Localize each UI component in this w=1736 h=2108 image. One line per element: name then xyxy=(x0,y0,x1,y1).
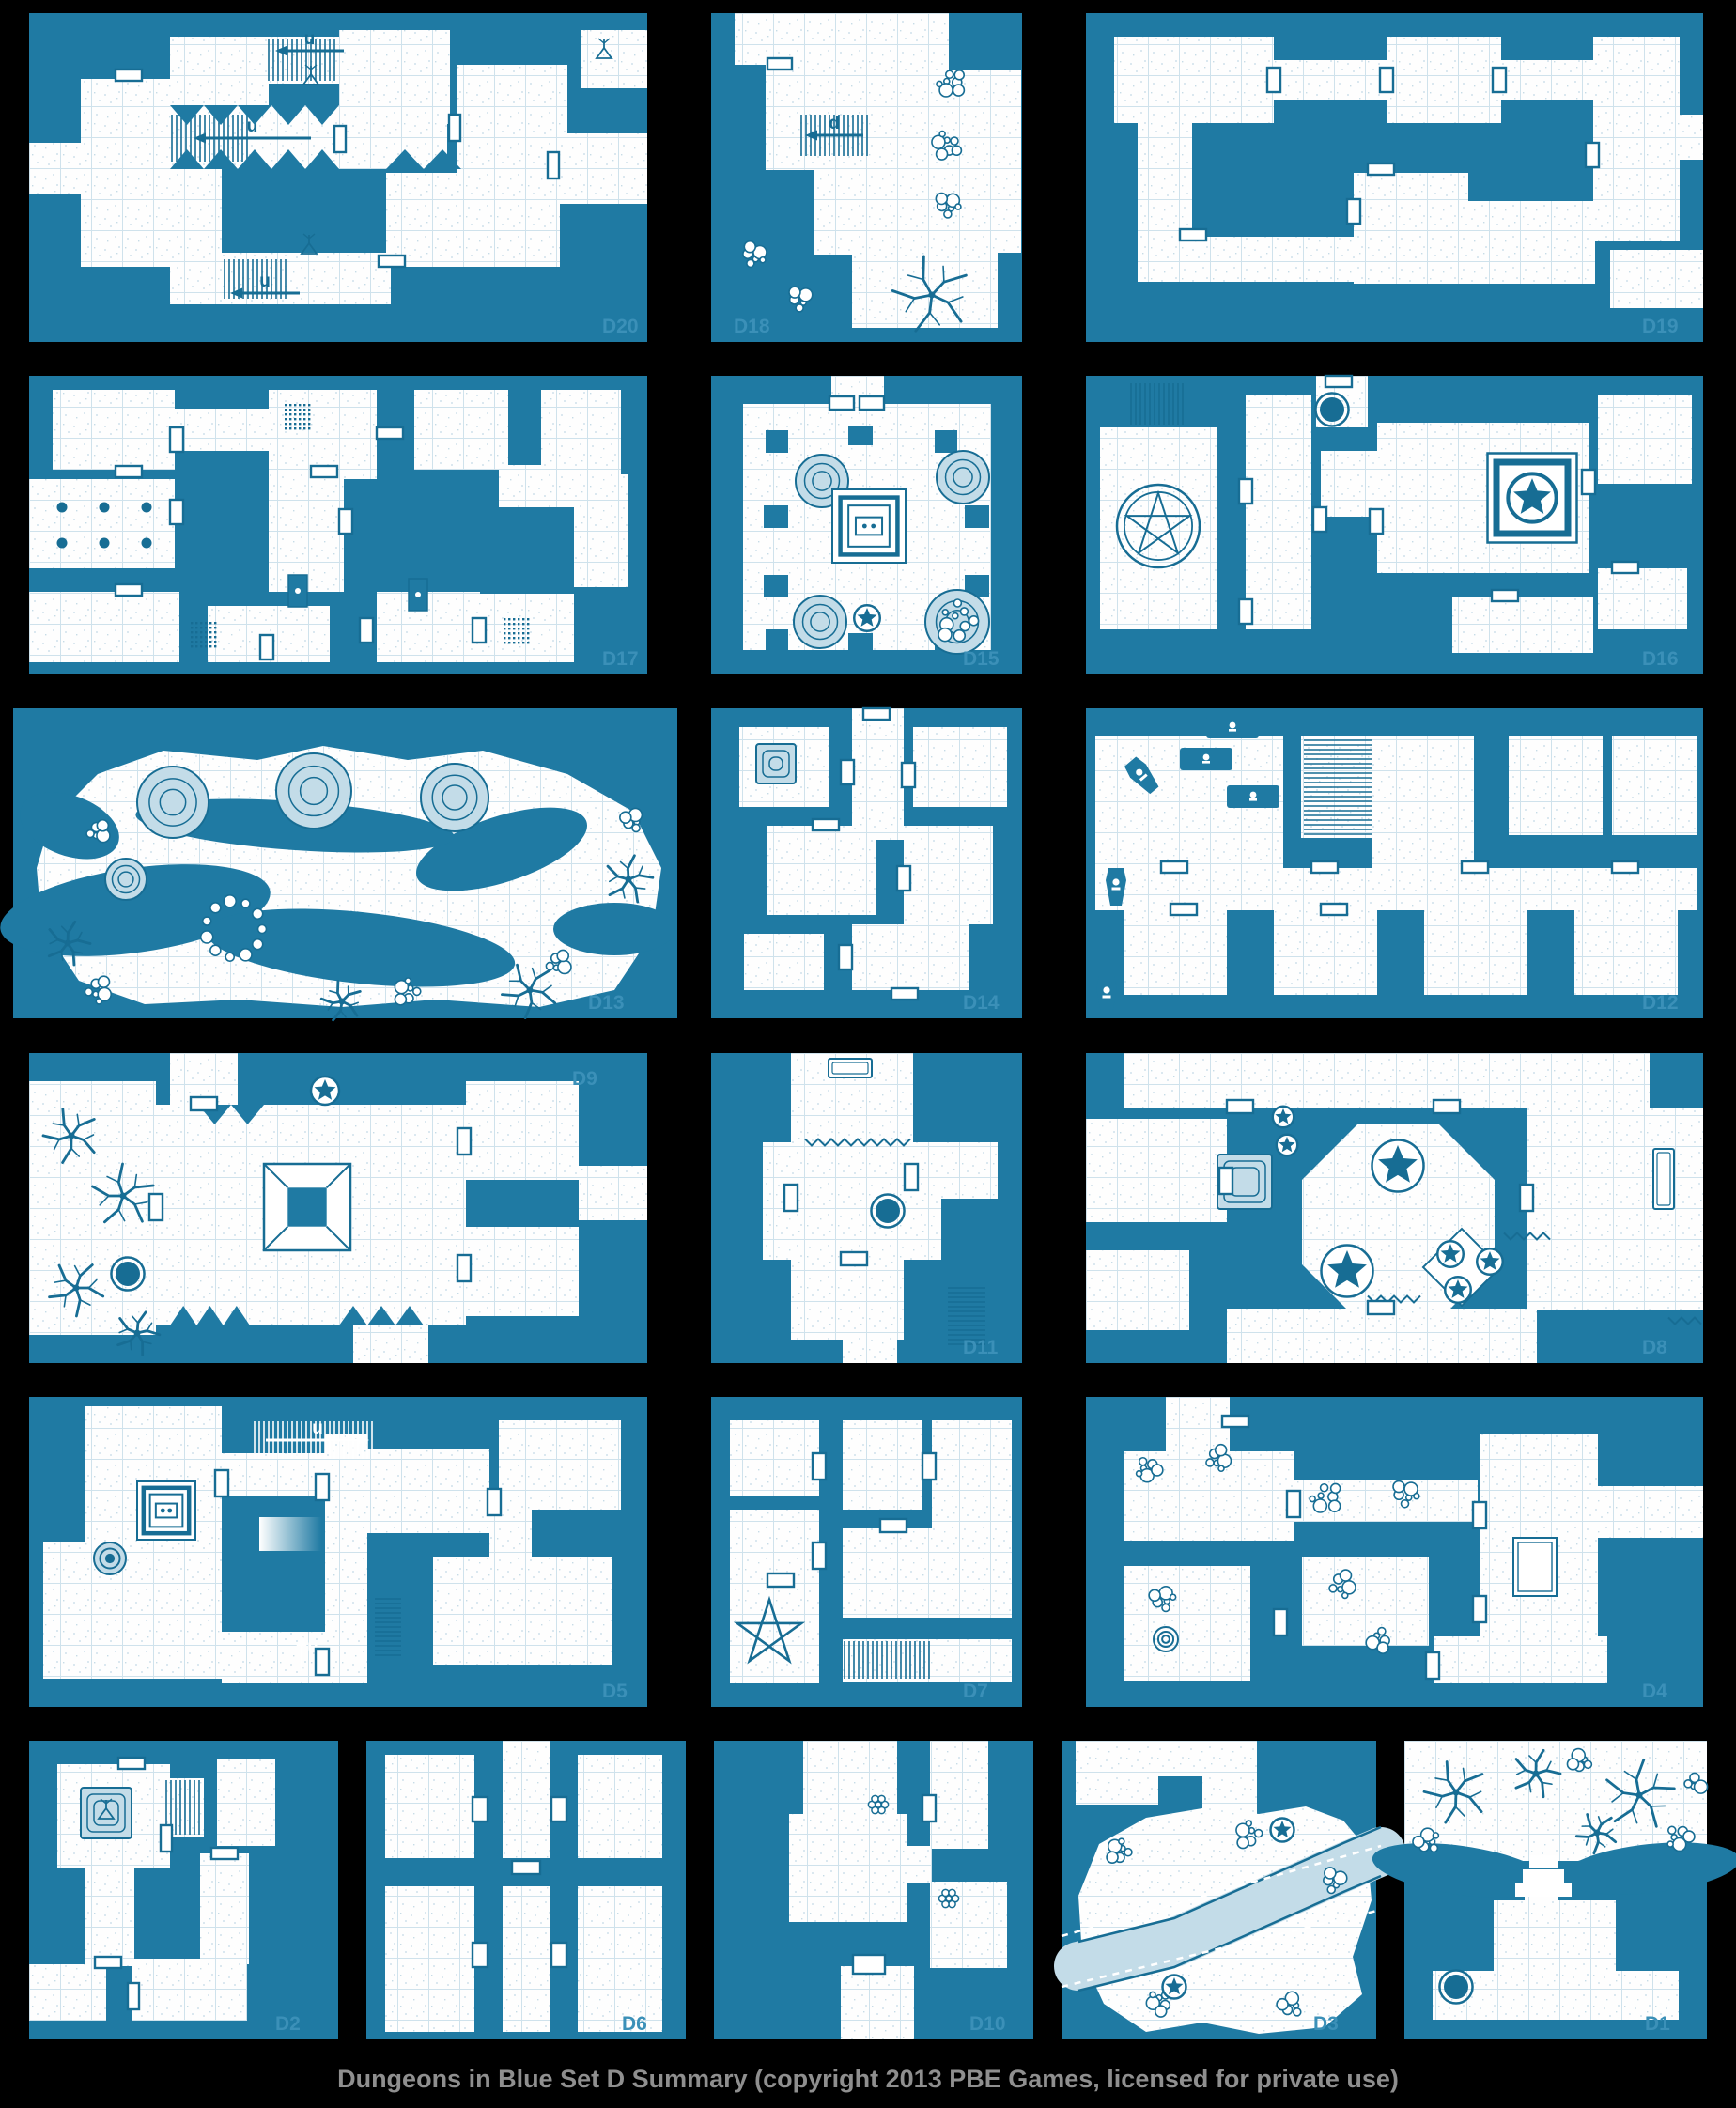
map-tile-D9: D9 xyxy=(29,1053,647,1363)
map-tile-D11: D11 xyxy=(711,1053,1022,1363)
caption: Dungeons in Blue Set D Summary (copyrigh… xyxy=(0,2065,1736,2094)
dungeon-map-sheet: uuuD20dD18D19D17D15D16D13D14D12D9D11D8uu… xyxy=(0,0,1736,2108)
map-tile-D19: D19 xyxy=(1086,13,1703,342)
tile-label-D2: D2 xyxy=(275,2013,301,2035)
tile-label-D9: D9 xyxy=(572,1068,597,1090)
svg-text:u: u xyxy=(312,1418,323,1438)
svg-text:u: u xyxy=(304,29,316,49)
tile-label-D14: D14 xyxy=(963,992,1000,1014)
tile-label-D20: D20 xyxy=(602,316,639,337)
map-tile-D10: D10 xyxy=(714,1741,1033,2039)
map-tile-D18: dD18 xyxy=(711,13,1022,342)
map-tile-D14: D14 xyxy=(711,708,1022,1018)
map-tile-D7: D7 xyxy=(711,1397,1022,1707)
map-tile-D3: D3 xyxy=(1062,1741,1381,2039)
tile-label-D3: D3 xyxy=(1313,2013,1339,2035)
tile-label-D16: D16 xyxy=(1642,648,1679,670)
map-tile-D2: D2 xyxy=(29,1741,338,2039)
tile-label-D18: D18 xyxy=(734,316,770,337)
svg-text:d: d xyxy=(829,114,840,133)
map-tile-D4: D4 xyxy=(1086,1397,1703,1707)
page: uuuD20dD18D19D17D15D16D13D14D12D9D11D8uu… xyxy=(0,0,1736,2108)
map-tile-D15: D15 xyxy=(711,376,1022,674)
tile-label-D6: D6 xyxy=(622,2013,647,2035)
tile-label-D11: D11 xyxy=(963,1337,999,1358)
tile-label-D19: D19 xyxy=(1642,316,1679,337)
tile-label-D8: D8 xyxy=(1642,1337,1667,1358)
tile-label-D4: D4 xyxy=(1642,1681,1667,1702)
tile-label-D10: D10 xyxy=(969,2013,1006,2035)
map-tile-D8: D8 xyxy=(1086,1053,1703,1363)
tile-label-D7: D7 xyxy=(963,1681,988,1702)
tile-label-D17: D17 xyxy=(602,648,639,670)
tile-label-D1: D1 xyxy=(1645,2013,1670,2035)
map-tile-D5: uuD5 xyxy=(29,1397,647,1707)
tile-label-D15: D15 xyxy=(963,648,1000,670)
tile-label-D12: D12 xyxy=(1642,992,1679,1014)
map-tile-D20: uuuD20 xyxy=(29,13,647,342)
map-tile-D6: D6 xyxy=(366,1741,686,2039)
map-tile-D17: D17 xyxy=(29,376,647,674)
map-tile-D1: D1 xyxy=(1369,1741,1736,2039)
map-tile-D13: D13 xyxy=(0,708,677,1020)
svg-text:u: u xyxy=(259,271,271,291)
tile-label-D13: D13 xyxy=(588,992,625,1014)
map-tile-D12: D12 xyxy=(1086,708,1703,1018)
tile-label-D5: D5 xyxy=(602,1681,628,1702)
map-tile-D16: D16 xyxy=(1086,376,1703,674)
